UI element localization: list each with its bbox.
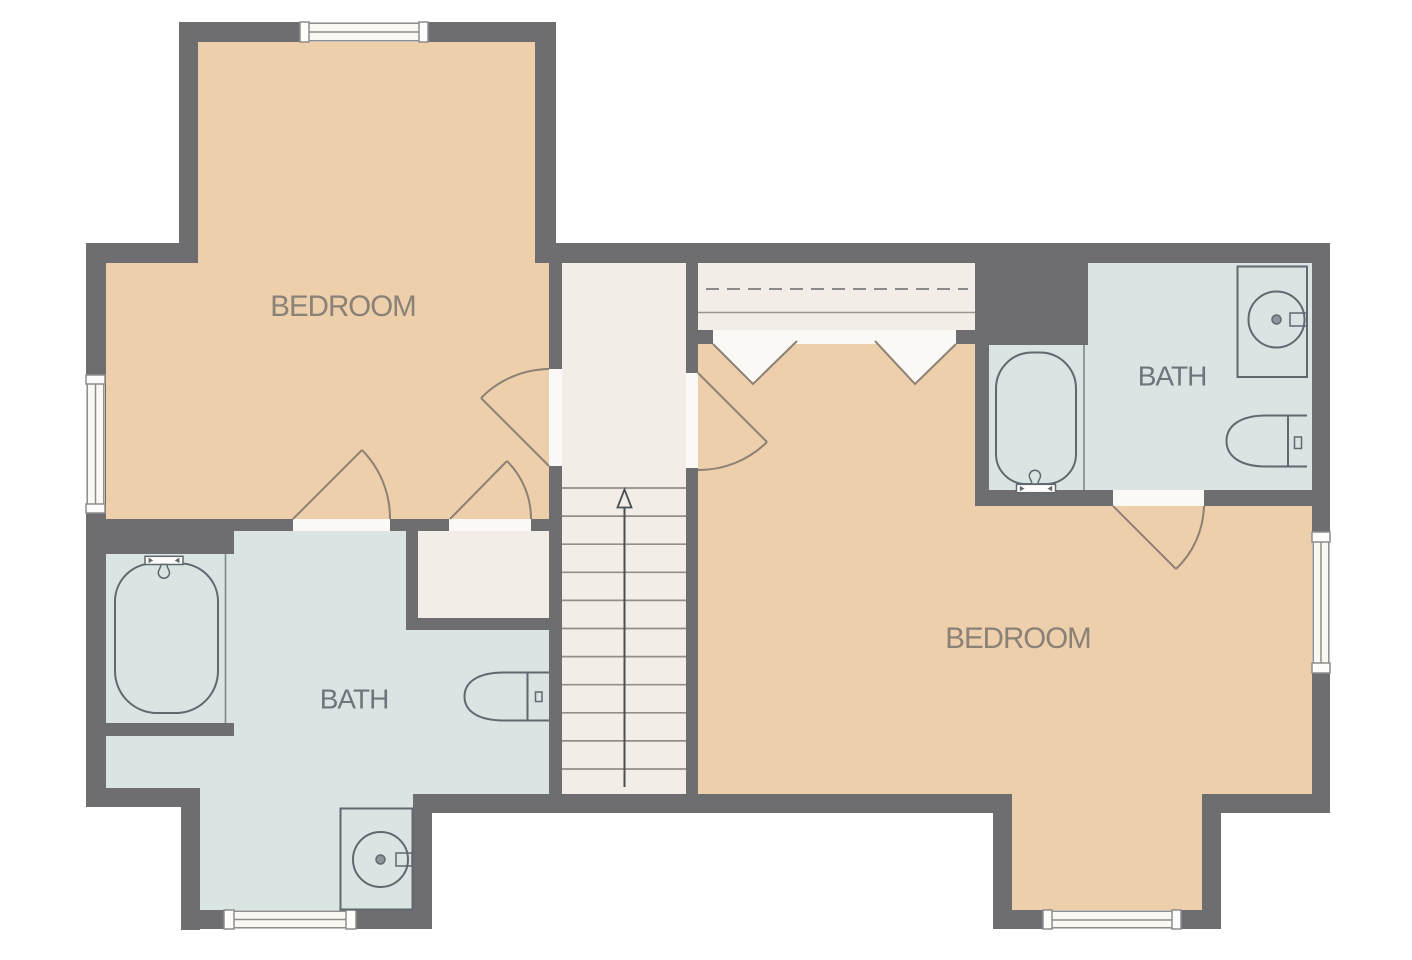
svg-text:BEDROOM: BEDROOM <box>945 622 1090 655</box>
svg-text:BATH: BATH <box>1138 361 1207 392</box>
svg-text:BEDROOM: BEDROOM <box>270 290 415 323</box>
svg-text:BATH: BATH <box>320 684 389 715</box>
